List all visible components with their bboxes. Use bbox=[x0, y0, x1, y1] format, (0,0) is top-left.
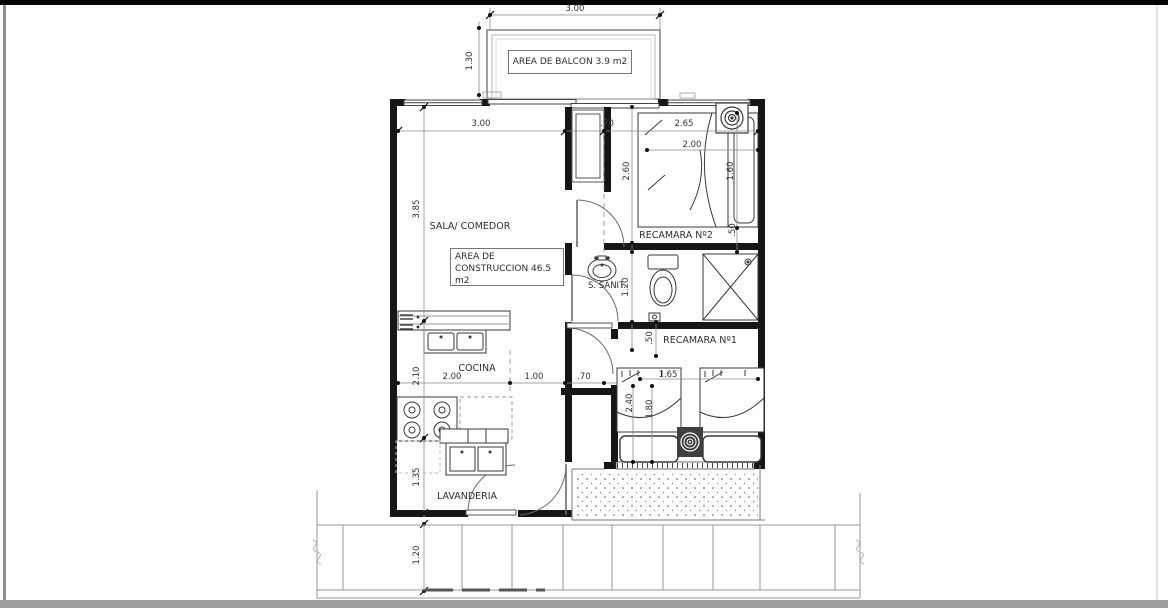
dim-kitchen-width: 2.00 bbox=[435, 372, 469, 382]
dim-bathroom-depth: 1.20 bbox=[621, 270, 631, 304]
bedroom2-label: RECAMARA Nº2 bbox=[626, 230, 726, 241]
dim-hall-width-bottom: .70 bbox=[567, 372, 601, 382]
ceiling-fan-icon-bedroom1 bbox=[677, 427, 703, 457]
balcony-label-box: AREA DE BALCON 3.9 m2 bbox=[508, 50, 632, 74]
dim-bedroom1-bed-depth: 1.80 bbox=[645, 392, 655, 426]
laundry-counter bbox=[440, 429, 508, 443]
bathroom-sink-icon bbox=[588, 256, 616, 281]
construction-area-line1: AREA DE bbox=[455, 251, 559, 263]
dim-balcony-depth: 1.30 bbox=[465, 44, 475, 78]
kitchen-sink-icon bbox=[424, 330, 486, 353]
door-bedroom1 bbox=[567, 328, 613, 374]
door-laundry-back bbox=[520, 464, 566, 515]
toilet-icon bbox=[648, 255, 678, 306]
construction-area-line2: CONSTRUCCION 46.5 m2 bbox=[455, 263, 559, 287]
dim-sidewalk-depth: 1.20 bbox=[412, 538, 422, 572]
roof-stub-right bbox=[680, 93, 695, 98]
dim-laundry-depth: 1.35 bbox=[412, 460, 422, 494]
ceiling-fan-icon-bedroom2 bbox=[716, 103, 748, 133]
laundry-label: LAVANDERIA bbox=[427, 491, 507, 502]
bed-bedroom1-right bbox=[700, 368, 764, 462]
dim-bedroom2-depth: 2.60 bbox=[622, 154, 632, 188]
dim-bedroom1-width: 1.65 bbox=[651, 370, 685, 380]
door-bedroom2 bbox=[577, 200, 624, 247]
floor-plan-page: 3.00 1.30 AREA DE BALCON 3.9 m2 3.00 .70… bbox=[0, 0, 1168, 610]
dim-hall-width-top: .70 bbox=[590, 119, 624, 129]
dim-kitchen-depth: 2.10 bbox=[412, 359, 422, 393]
bedroom1-label: RECAMARA Nº1 bbox=[650, 335, 750, 346]
living-room-label: SALA/ COMEDOR bbox=[420, 221, 520, 232]
window-living bbox=[404, 100, 482, 106]
kitchen-bar-counter bbox=[398, 311, 510, 330]
dim-bedroom2-bed-width: 2.00 bbox=[675, 140, 709, 150]
floor-drain-icon bbox=[649, 313, 660, 321]
construction-area-box: AREA DE CONSTRUCCION 46.5 m2 bbox=[450, 248, 564, 286]
dim-living-width: 3.00 bbox=[464, 119, 498, 129]
shower bbox=[703, 254, 758, 320]
patio bbox=[572, 465, 765, 520]
window-bedroom1 bbox=[616, 462, 754, 469]
dim-bedroom1-depth: 2.40 bbox=[625, 386, 635, 420]
dim-bedroom2-bed-depth: 1.60 bbox=[726, 154, 736, 188]
dim-mid-width: 1.00 bbox=[517, 372, 551, 382]
dim-bedroom2-width: 2.65 bbox=[667, 119, 701, 129]
dim-balcony-width: 3.00 bbox=[558, 4, 592, 14]
laundry-sink-icon bbox=[446, 443, 506, 475]
floor-plan-drawing bbox=[0, 0, 1168, 610]
dim-bedroom2-gap: .50 bbox=[728, 213, 738, 247]
